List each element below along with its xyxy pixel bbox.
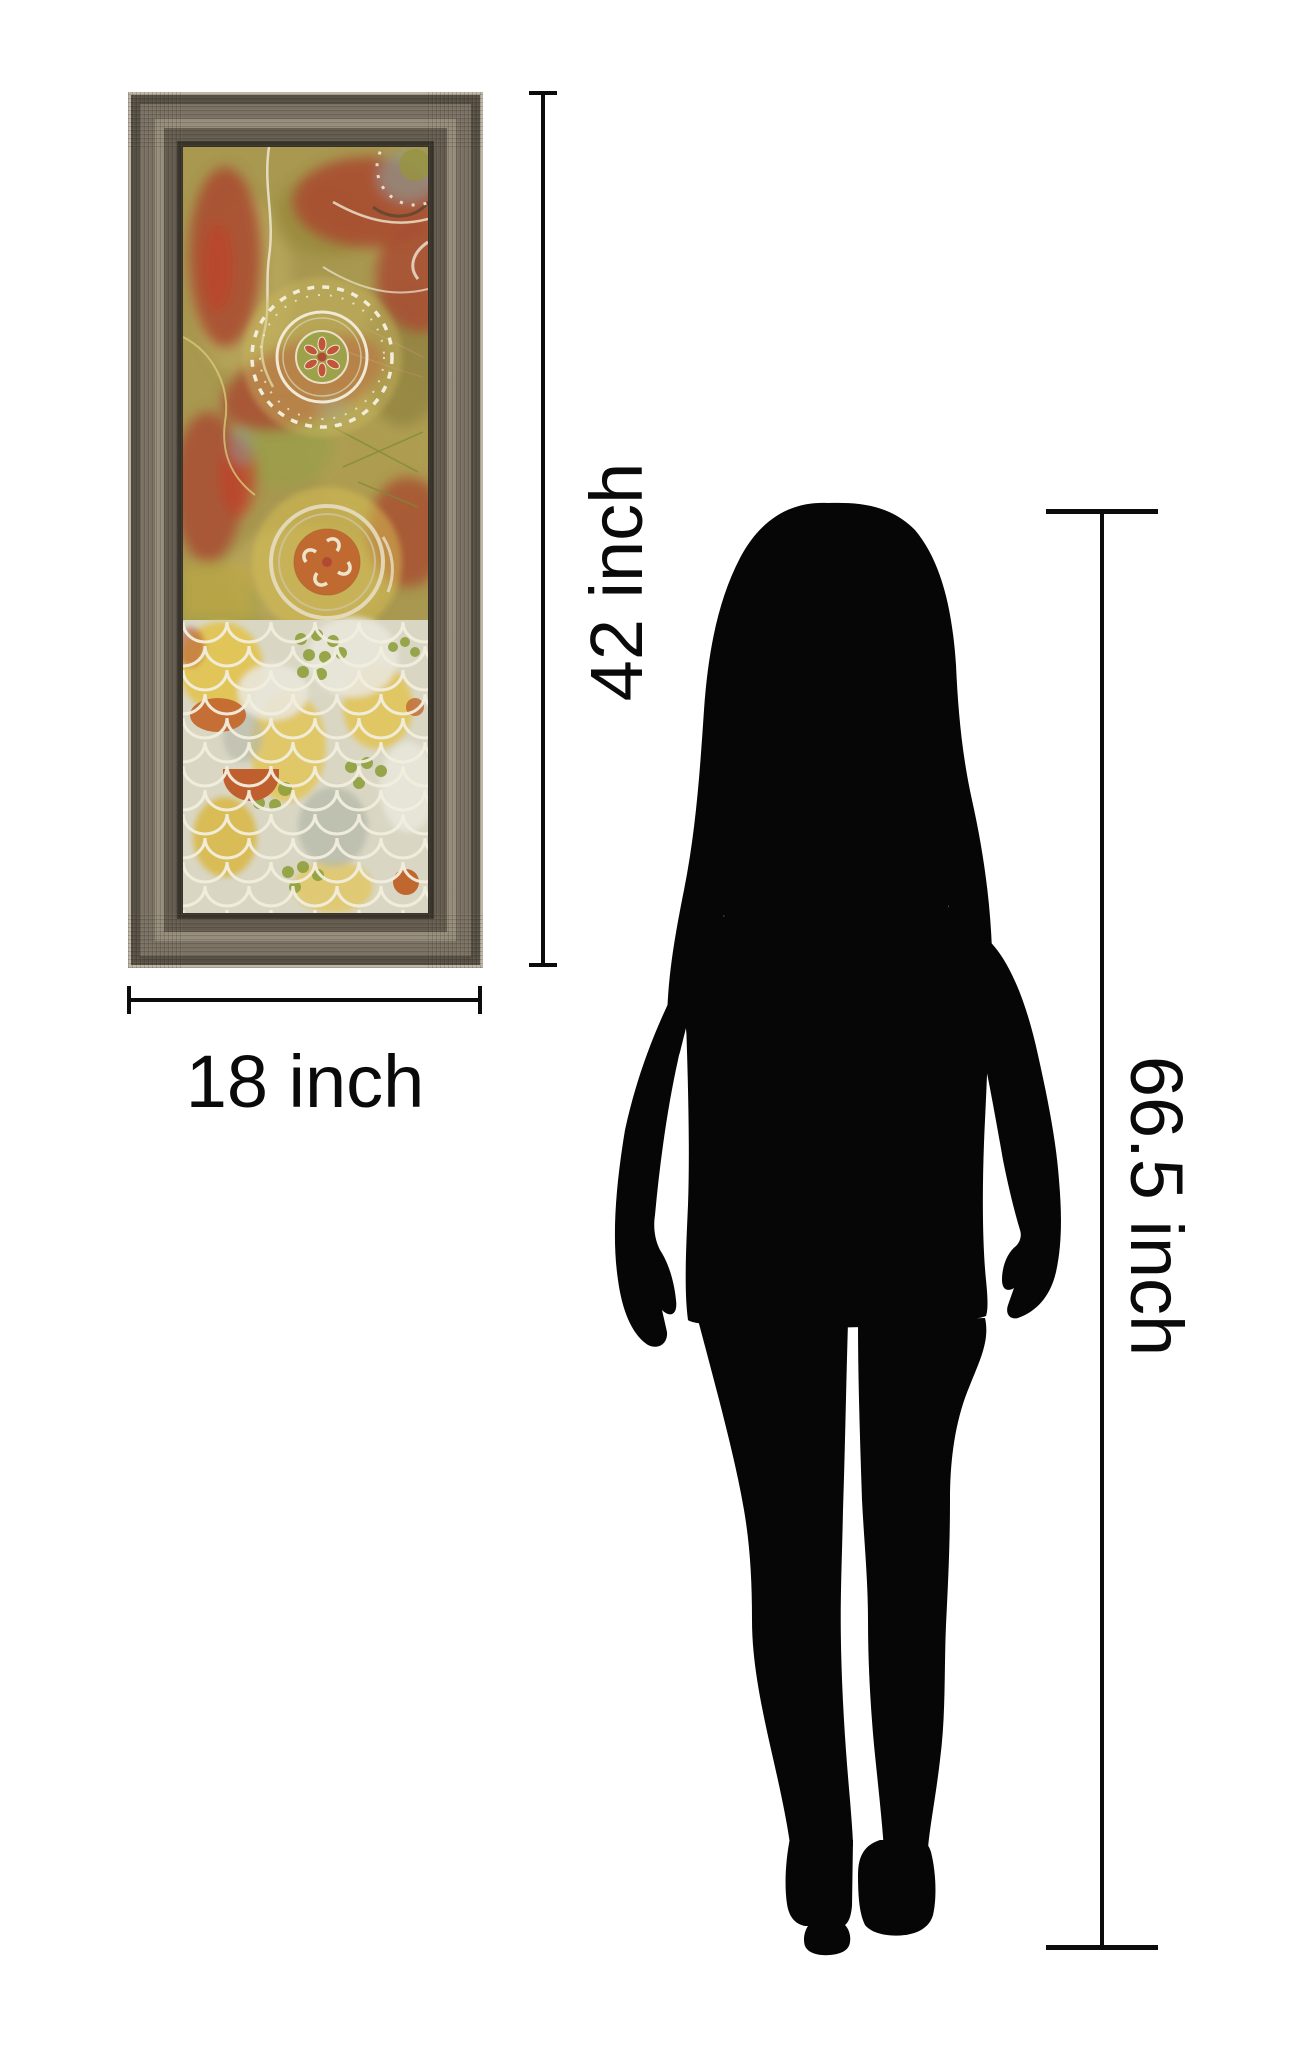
woman-silhouette-figure — [595, 490, 1085, 1965]
width-dimension-left-cap — [127, 986, 131, 1014]
art-width-label: 18 inch — [186, 1045, 425, 1119]
picture-frame — [128, 92, 483, 968]
mandala-motif-lower — [252, 487, 402, 637]
abstract-artwork — [183, 147, 428, 913]
height-dimension-top-cap — [529, 91, 557, 95]
silhouette-right-leg — [858, 1318, 986, 1850]
woman-silhouette — [595, 490, 1085, 1965]
silhouette-right-boot — [858, 1840, 935, 1936]
silhouette-left-boot — [786, 1838, 853, 1955]
person-height-label: 66.5 inch — [1119, 1056, 1193, 1356]
width-dimension-line — [129, 998, 482, 1002]
artwork-canvas — [183, 147, 428, 913]
person-height-dimension-line — [1100, 512, 1104, 1948]
scale-pattern-section — [183, 617, 428, 913]
silhouette-left-leg — [698, 1320, 853, 1846]
silhouette-torso-dress — [686, 882, 989, 1328]
product-size-comparison-diagram: 42 inch 18 inch 66.5 inch — [0, 0, 1296, 2048]
width-dimension-right-cap — [478, 986, 482, 1014]
person-height-bottom-cap — [1046, 1945, 1158, 1950]
fish-scale-overlay — [183, 620, 428, 913]
mandala-motif-upper — [242, 277, 402, 437]
person-height-top-cap — [1046, 509, 1158, 514]
height-dimension-line — [541, 93, 545, 967]
height-dimension-bottom-cap — [529, 963, 557, 967]
